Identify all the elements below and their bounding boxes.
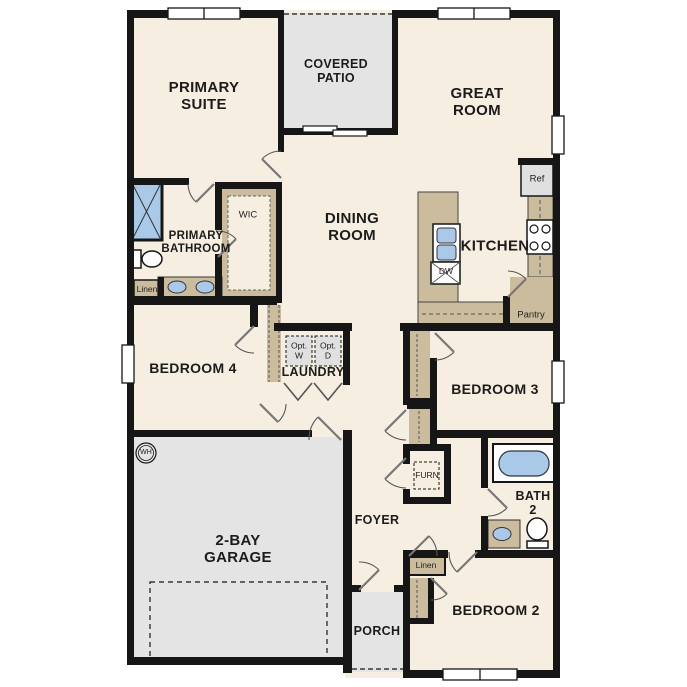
room-label-bath2: BATH 2: [516, 489, 551, 517]
wall: [430, 358, 437, 403]
sink: [196, 281, 214, 293]
burner: [530, 242, 538, 250]
bedroom3-closet: [410, 331, 430, 398]
room-label-laundry: LAUNDRY: [282, 365, 345, 379]
wall: [481, 550, 560, 558]
sliding-door-panel: [303, 126, 337, 132]
wall: [127, 430, 312, 437]
floor-plan: PRIMARY SUITE COVERED PATIO GREAT ROOM D…: [0, 0, 687, 687]
wall: [394, 585, 403, 592]
label-refrigerator: Ref: [530, 175, 545, 186]
room-label-great-room: GREAT ROOM: [451, 86, 504, 120]
wall: [278, 135, 284, 152]
wall: [158, 277, 164, 298]
wall: [278, 10, 284, 135]
wall: [407, 403, 432, 409]
wall: [215, 182, 282, 189]
floor-plan-drawing: [0, 0, 687, 687]
wall: [430, 403, 437, 451]
wall: [127, 10, 134, 665]
wall: [553, 10, 560, 678]
label-linen-bath: Linen: [137, 285, 158, 295]
toilet-bowl: [527, 518, 547, 540]
room-label-bedroom2: BEDROOM 2: [452, 603, 540, 619]
room-label-bedroom3: BEDROOM 3: [451, 382, 539, 398]
burner: [542, 225, 550, 233]
wall: [403, 331, 410, 403]
room-label-dining-room: DINING ROOM: [325, 211, 379, 245]
room-label-primary-bathroom: PRIMARY BATHROOM: [161, 230, 230, 256]
wall: [274, 323, 352, 331]
sink: [493, 528, 511, 541]
room-label-covered-patio: COVERED PATIO: [304, 57, 368, 85]
wall: [403, 451, 410, 464]
label-water-heater: WH: [140, 449, 152, 457]
room-label-porch: PORCH: [354, 624, 401, 638]
wall: [392, 10, 398, 135]
sliding-door-panel: [333, 130, 367, 136]
wall: [215, 254, 222, 303]
bathtub: [499, 451, 549, 476]
wall: [518, 158, 560, 165]
toilet-bowl: [142, 251, 162, 267]
wall: [127, 178, 189, 185]
window: [552, 361, 564, 403]
wall: [343, 430, 352, 673]
window: [552, 116, 564, 154]
room-label-primary-suite: PRIMARY SUITE: [169, 80, 240, 114]
wall: [430, 430, 560, 438]
kitchen-counter-return: [418, 302, 508, 324]
wall: [481, 438, 488, 488]
window: [122, 345, 134, 383]
wall: [250, 296, 258, 327]
label-opt-washer: Opt. W: [291, 341, 307, 360]
label-dishwasher: DW: [439, 267, 453, 277]
wall: [503, 296, 510, 323]
wall: [276, 182, 282, 303]
kitchen-sink-basin: [437, 245, 456, 260]
room-label-foyer: FOYER: [355, 513, 400, 527]
room-label-wic: WIC: [239, 211, 257, 222]
wall: [444, 451, 451, 503]
toilet-tank: [527, 541, 548, 548]
label-pantry: Pantry: [517, 311, 544, 322]
wall: [403, 444, 451, 451]
wall: [215, 189, 222, 230]
room-label-garage: 2-BAY GARAGE: [204, 533, 272, 567]
room-label-bedroom4: BEDROOM 4: [149, 361, 237, 377]
label-linen-hall: Linen: [416, 561, 437, 571]
burner: [542, 242, 550, 250]
wall: [408, 618, 434, 624]
wall: [127, 657, 349, 665]
label-furnace: FURN: [415, 471, 439, 481]
kitchen-sink-basin: [437, 228, 456, 243]
sink: [168, 281, 186, 293]
room-label-kitchen: KITCHEN: [461, 239, 530, 256]
bedroom2-closet: [410, 578, 428, 622]
burner: [530, 225, 538, 233]
label-opt-dryer: Opt. D: [320, 341, 336, 360]
wall: [403, 497, 451, 504]
toilet-tank: [133, 250, 141, 268]
wall: [400, 323, 560, 331]
